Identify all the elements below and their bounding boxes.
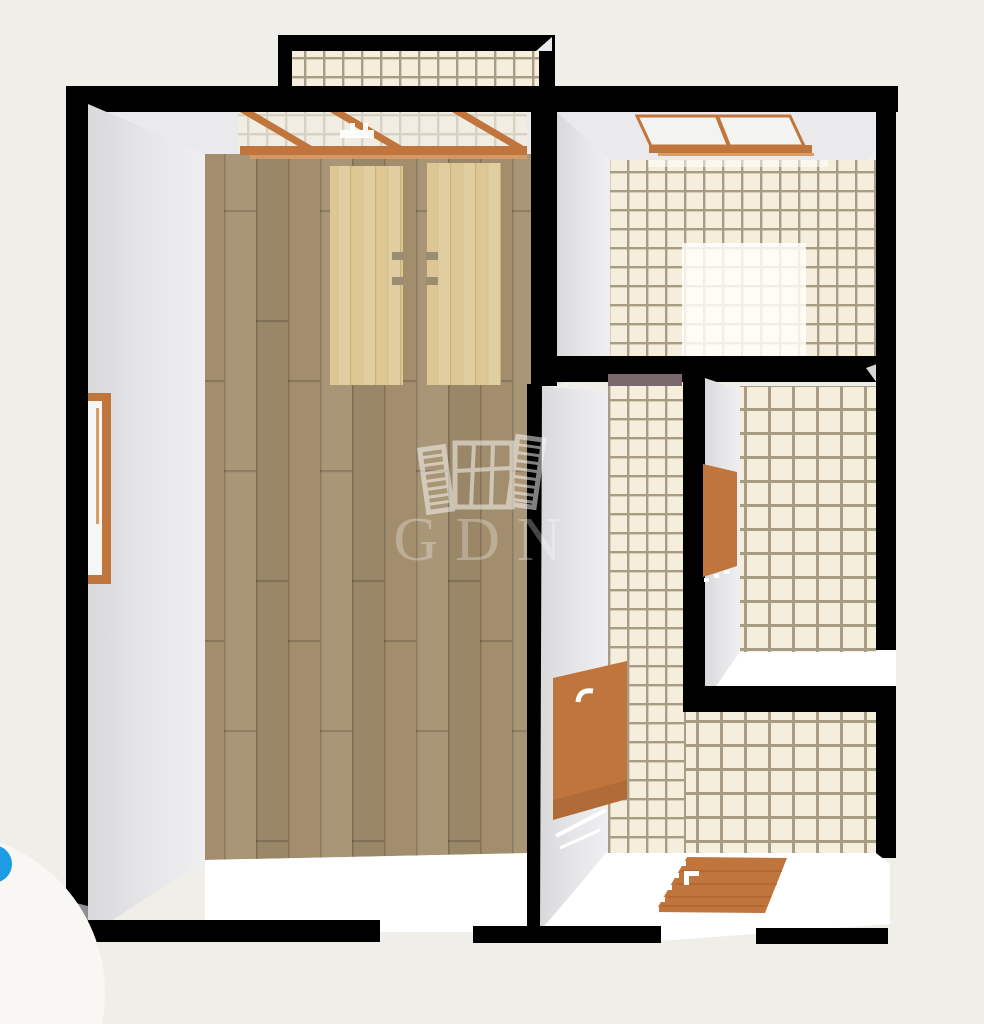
kitchen-wall-highlight	[648, 160, 828, 167]
wc-tiled-wall	[740, 386, 876, 652]
bathroom-left-wall	[540, 386, 608, 930]
outer-wall-bottom-right	[756, 928, 888, 944]
balcony-door	[238, 112, 527, 159]
bathroom	[540, 364, 896, 942]
outer-wall-top	[66, 86, 898, 112]
outer-wall-bottom-mid	[473, 926, 661, 943]
wall-living-kitchen	[531, 86, 557, 386]
wall-bathroom-wc	[683, 364, 705, 706]
wardrobe-panel-left	[330, 166, 403, 385]
outer-wall-right	[876, 92, 896, 858]
kitchen-window-light-patch	[682, 243, 806, 360]
watermark-text: GDN	[393, 506, 578, 574]
kitchen	[531, 112, 888, 398]
outer-wall-bottom-left	[66, 920, 380, 942]
kitchen-bottom-wall	[531, 356, 880, 382]
kitchen-window	[637, 116, 814, 156]
wc-door	[703, 464, 737, 577]
balcony-tile-floor	[292, 51, 539, 89]
wardrobe-panel-right	[427, 163, 501, 385]
wc-bottom-wall	[683, 686, 896, 712]
wc	[683, 378, 896, 712]
outer-wall-left	[66, 86, 88, 936]
kitchen-left-wall	[557, 112, 610, 384]
floorplan-canvas: GDN	[0, 0, 984, 1024]
floorplan-render: GDN	[0, 0, 984, 1024]
bathroom-tiled-wall-lower	[686, 712, 876, 853]
bathroom-shelf	[608, 374, 682, 386]
